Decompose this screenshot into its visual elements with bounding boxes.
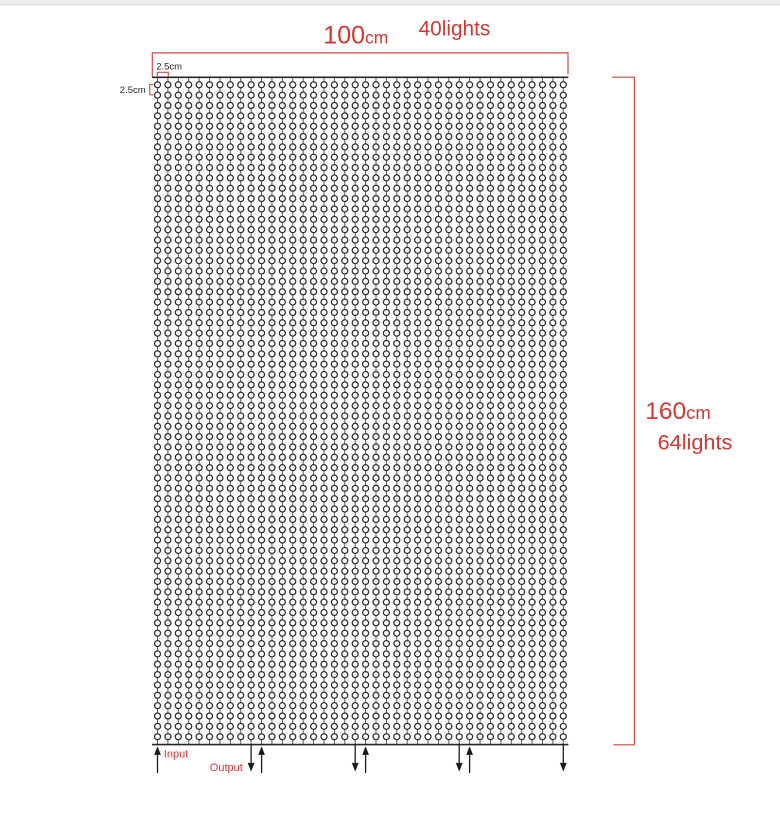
svg-text:2.5cm: 2.5cm <box>120 85 146 96</box>
svg-text:64lights: 64lights <box>658 430 733 455</box>
svg-text:Output: Output <box>210 762 243 774</box>
svg-text:2.5cm: 2.5cm <box>156 61 182 72</box>
svg-text:Input: Input <box>164 749 188 761</box>
svg-text:160cm: 160cm <box>645 398 711 425</box>
svg-text:100cm: 100cm <box>323 22 388 50</box>
svg-text:40lights: 40lights <box>419 18 491 41</box>
